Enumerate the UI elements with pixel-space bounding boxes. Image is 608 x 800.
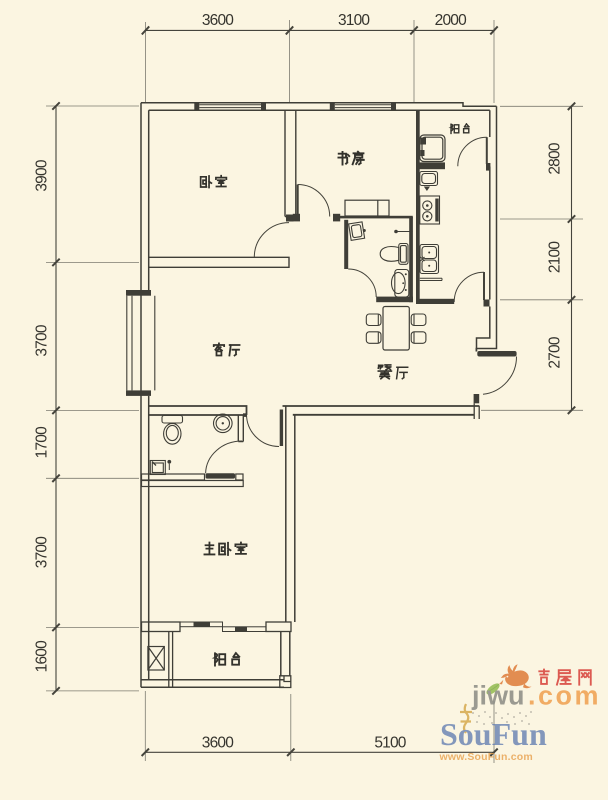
svg-text:.com: .com xyxy=(528,681,601,711)
svg-text:2000: 2000 xyxy=(435,12,467,29)
svg-text:1600: 1600 xyxy=(34,640,51,672)
svg-text:3600: 3600 xyxy=(202,735,234,752)
svg-text:3100: 3100 xyxy=(338,12,370,29)
svg-text:2700: 2700 xyxy=(547,336,564,368)
svg-text:SouFun: SouFun xyxy=(440,716,547,752)
svg-text:3900: 3900 xyxy=(34,159,51,191)
svg-text:3700: 3700 xyxy=(34,536,51,568)
svg-text:jiwu: jiwu xyxy=(471,681,525,711)
svg-text:3600: 3600 xyxy=(202,12,234,29)
svg-text:2800: 2800 xyxy=(547,142,564,174)
svg-text:3700: 3700 xyxy=(34,324,51,356)
svg-text:1700: 1700 xyxy=(34,426,51,458)
svg-text:5100: 5100 xyxy=(374,735,406,752)
svg-text:2100: 2100 xyxy=(547,241,564,273)
svg-text:www.SouFun.com: www.SouFun.com xyxy=(439,751,533,763)
